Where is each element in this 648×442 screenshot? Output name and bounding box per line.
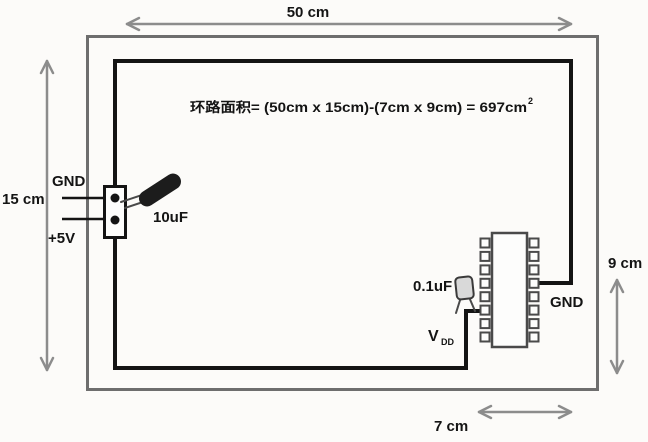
ic-pin [481, 279, 490, 288]
pcb-loop-area-diagram: 50 cm 15 cm 9 cm 7 cm 环路面积= (50cm x 15cm… [0, 0, 648, 442]
vdd-label-subscript: DD [441, 337, 454, 347]
decoupling-capacitor-label: 0.1uF [413, 278, 452, 295]
dimension-label-right: 9 cm [608, 255, 642, 272]
plus5v-input-label: +5V [48, 230, 75, 247]
dimension-label-top: 50 cm [287, 4, 330, 21]
gnd-input-label: GND [52, 173, 86, 190]
connector-5v-pin [111, 216, 120, 225]
dimension-label-left: 15 cm [2, 191, 45, 208]
ic-body [492, 233, 527, 347]
dimension-arrow-50cm [127, 18, 571, 30]
dimension-arrow-7cm [479, 406, 571, 418]
dimension-arrow-15cm [41, 61, 53, 370]
ic-pin [481, 319, 490, 328]
ic-pin [530, 333, 539, 342]
vdd-label: V [428, 328, 439, 345]
ic-pin [530, 319, 539, 328]
decoupling-capacitor-01uf [455, 276, 475, 313]
ic-chip [481, 233, 539, 347]
ic-pin [530, 265, 539, 274]
ic-pin [481, 333, 490, 342]
ic-pin [481, 292, 490, 301]
dimension-label-bottom: 7 cm [434, 418, 468, 435]
loop-area-formula: 环路面积= (50cm x 15cm)-(7cm x 9cm) = 697cm [190, 99, 527, 115]
ic-pin [481, 252, 490, 261]
ic-gnd-pin [530, 279, 539, 288]
bulk-capacitor-label: 10uF [153, 209, 188, 226]
ic-pin [530, 252, 539, 261]
ic-pin [530, 306, 539, 315]
diagram-canvas: 50 cm 15 cm 9 cm 7 cm 环路面积= (50cm x 15cm… [0, 0, 648, 442]
decoupling-capacitor-body [455, 276, 474, 300]
bulk-capacitor-10uf [121, 170, 184, 209]
dimension-arrow-9cm [611, 280, 623, 373]
ic-gnd-label: GND [550, 294, 584, 311]
ic-pin [530, 239, 539, 248]
loop-area-formula-superscript: 2 [528, 96, 533, 106]
ic-pin [481, 265, 490, 274]
ic-vdd-pin [481, 306, 490, 315]
ic-pin [481, 239, 490, 248]
ic-pin [530, 292, 539, 301]
bulk-capacitor-body [136, 170, 184, 209]
connector-gnd-pin [111, 194, 120, 203]
